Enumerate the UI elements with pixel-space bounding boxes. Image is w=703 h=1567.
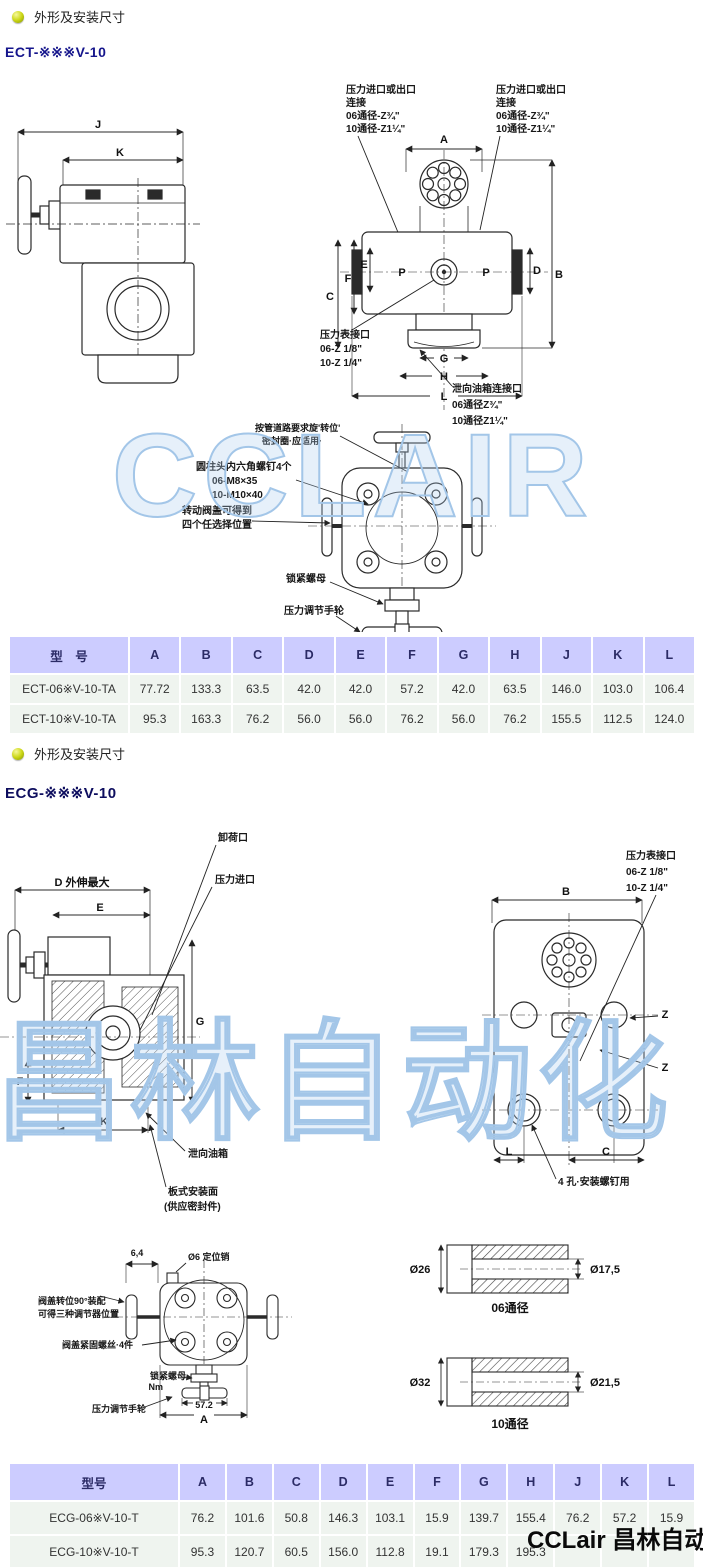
svg-text:压力调节手轮: 压力调节手轮	[284, 604, 344, 617]
table-cell: ECT-10※V-10-TA	[10, 705, 128, 733]
table-cell: 42.0	[439, 675, 488, 703]
table-row: ECT-10※V-10-TA 95.3 163.3 76.2 56.0 56.0…	[10, 705, 694, 733]
ect-bottom-view	[308, 424, 496, 632]
ect-handwheel-annotation: 压力调节手轮	[284, 604, 360, 632]
cclair-logo: CCLair 昌林自动化	[527, 1520, 703, 1555]
table-header-e: E	[368, 1464, 413, 1500]
dim-572: 57.2	[195, 1400, 213, 1410]
dim-label-c: C	[602, 1146, 610, 1158]
bullet-icon	[12, 748, 24, 760]
table-cell: 155.5	[542, 705, 591, 733]
bore10-outer: Ø32	[410, 1377, 431, 1389]
svg-text:压力进口或出口: 压力进口或出口	[496, 83, 566, 96]
table-cell: 124.0	[645, 705, 694, 733]
table-header-g: G	[439, 637, 488, 673]
table-cell: 50.8	[274, 1502, 319, 1534]
bore10-inner: Ø21,5	[590, 1377, 620, 1389]
table-cell: 76.2	[490, 705, 539, 733]
table-cell: 19.1	[415, 1536, 460, 1567]
ecg-drain-annotation: 泄向油箱	[146, 1113, 228, 1160]
table-cell: 146.3	[321, 1502, 366, 1534]
table-cell: 106.4	[645, 675, 694, 703]
dim-label-p-left: P	[398, 267, 405, 279]
table-header-row: 型 号 A B C D E F G H J K L	[10, 637, 694, 673]
svg-text:Ø6 定位销: Ø6 定位销	[188, 1251, 230, 1262]
table-cell: 56.0	[336, 705, 385, 733]
dim-label-b: B	[562, 886, 570, 898]
table-header-f: F	[415, 1464, 460, 1500]
svg-text:(供应密封件): (供应密封件)	[164, 1200, 221, 1213]
dim-label-a: A	[200, 1414, 208, 1426]
dim-label-e: E	[96, 902, 103, 914]
table-cell: 133.3	[181, 675, 230, 703]
table-cell: 101.6	[227, 1502, 272, 1534]
svg-text:10通径-Z1¼": 10通径-Z1¼"	[496, 122, 555, 135]
ect-drawing: J K 压力进口或出口 连接 06通径-Z¾" 10通径-Z1¼" 压力进口或出…	[0, 80, 703, 632]
table-cell: 112.5	[593, 705, 642, 733]
svg-text:06通径Z¾": 06通径Z¾"	[452, 398, 503, 411]
svg-text:板式安装面: 板式安装面	[168, 1185, 218, 1198]
ecg-mount-annotation: 板式安装面 (供应密封件)	[150, 1125, 221, 1213]
ecg-detail-drawing: 6,4 Ø6 定位销 阀盖转位90°装配 可得三种调节器位置 阀盖紧固螺丝·4件…	[0, 1240, 703, 1455]
svg-text:密封圈·应适用·: 密封圈·应适用·	[261, 435, 322, 446]
table-cell: 95.3	[180, 1536, 225, 1567]
ecg-side-view	[0, 890, 200, 1133]
table-cell: ECT-06※V-10-TA	[10, 675, 128, 703]
ect-cover-annotation: 转动阀盖可得到 四个任选择位置	[182, 504, 330, 531]
svg-text:压力表接口: 压力表接口	[626, 849, 676, 862]
table-cell: 95.3	[130, 705, 179, 733]
dim-label-dmax: D 外伸最大	[55, 875, 110, 889]
table-cell: ECG-10※V-10-T	[10, 1536, 178, 1567]
svg-text:阀盖紧固螺丝·4件: 阀盖紧固螺丝·4件	[62, 1339, 133, 1350]
bore10-label: 10通径	[491, 1416, 528, 1431]
svg-text:连接: 连接	[346, 96, 366, 109]
dim-label-d: D	[533, 265, 541, 277]
table-cell: 103.1	[368, 1502, 413, 1534]
table-cell: 76.2	[387, 705, 436, 733]
svg-text:06通径-Z¾": 06通径-Z¾"	[346, 109, 400, 122]
table-cell: 42.0	[336, 675, 385, 703]
ecg-pin-annotation: Ø6 定位销	[176, 1251, 230, 1272]
table-cell: 76.2	[233, 705, 282, 733]
svg-text:转动阀盖可得到: 转动阀盖可得到	[182, 504, 252, 517]
dim-label-g: G	[440, 353, 449, 365]
ect-drain-annotation: 泄向油箱连接口 06通径Z¾" 10通径Z1¼"	[420, 350, 522, 427]
svg-text:四个任选择位置: 四个任选择位置	[182, 518, 252, 531]
table-header-c: C	[274, 1464, 319, 1500]
ecg-cover90-annotation: 阀盖转位90°装配 可得三种调节器位置	[38, 1295, 124, 1319]
table-header-model: 型号	[10, 1464, 178, 1500]
model-heading-ecg: ECG-※※※V-10	[5, 784, 117, 802]
svg-text:锁紧螺母: 锁紧螺母	[286, 572, 326, 585]
svg-text:压力进口或出口: 压力进口或出口	[346, 83, 416, 96]
table-header-f: F	[387, 637, 436, 673]
table-header-a: A	[180, 1464, 225, 1500]
ect-port-annotation-left: 压力进口或出口 连接 06通径-Z¾" 10通径-Z1¼"	[346, 83, 416, 242]
dim-label-a: A	[440, 134, 448, 146]
table-header-c: C	[233, 637, 282, 673]
dim-label-l: L	[506, 1146, 513, 1158]
svg-text:10-Z 1/4": 10-Z 1/4"	[320, 358, 362, 369]
ecg-top-view	[115, 1260, 292, 1418]
dim-label-k: K	[100, 1116, 108, 1128]
table-header-e: E	[336, 637, 385, 673]
dim-label-z1: Z	[662, 1009, 669, 1021]
table-header-k: K	[602, 1464, 647, 1500]
svg-text:10-M10×40: 10-M10×40	[212, 490, 263, 501]
table-cell: ECG-06※V-10-T	[10, 1502, 178, 1534]
bore-06-drawing	[441, 1245, 584, 1293]
svg-text:可得三种调节器位置: 可得三种调节器位置	[38, 1308, 119, 1319]
table-cell: 139.7	[461, 1502, 506, 1534]
table-cell: 63.5	[233, 675, 282, 703]
table-header-k: K	[593, 637, 642, 673]
bullet-icon	[12, 11, 24, 23]
dim-label-g: G	[196, 1016, 205, 1028]
table-header-a: A	[130, 637, 179, 673]
ecg-cover-screws-annotation: 阀盖紧固螺丝·4件	[62, 1339, 176, 1350]
bore06-inner: Ø17,5	[590, 1264, 620, 1276]
svg-text:06通径-Z¾": 06通径-Z¾"	[496, 109, 550, 122]
table-header-b: B	[181, 637, 230, 673]
section1-header: 外形及安装尺寸	[12, 7, 125, 26]
svg-text:06-M8×35: 06-M8×35	[212, 476, 258, 487]
svg-text:连接: 连接	[496, 96, 516, 109]
svg-text:06-Z 1/8": 06-Z 1/8"	[626, 867, 668, 878]
table-header-b: B	[227, 1464, 272, 1500]
svg-text:10-Z 1/4": 10-Z 1/4"	[626, 883, 668, 894]
table-header-l: L	[645, 637, 694, 673]
ecg-locknut-annotation: 锁紧螺母	[150, 1370, 192, 1381]
nm-label: Nm	[148, 1382, 163, 1392]
svg-text:圆柱头内六角螺钉4个: 圆柱头内六角螺钉4个	[196, 460, 293, 473]
table-header-model: 型 号	[10, 637, 128, 673]
table-cell: 146.0	[542, 675, 591, 703]
svg-text:压力调节手轮: 压力调节手轮	[92, 1403, 146, 1414]
catalog-page: 外形及安装尺寸 ECT-※※※V-10	[0, 0, 703, 1567]
dim-label-k: K	[116, 147, 124, 159]
dim-label-j: J	[95, 119, 101, 131]
svg-text:10通径-Z1¼": 10通径-Z1¼"	[346, 122, 405, 135]
svg-text:泄向油箱连接口: 泄向油箱连接口	[452, 382, 522, 395]
table-cell: 77.72	[130, 675, 179, 703]
table-header-l: L	[649, 1464, 694, 1500]
bore06-outer: Ø26	[410, 1264, 431, 1276]
svg-text:压力进口: 压力进口	[215, 873, 255, 886]
table-cell: 163.3	[181, 705, 230, 733]
table-cell: 57.2	[387, 675, 436, 703]
section1-title: 外形及安装尺寸	[34, 7, 125, 26]
table-cell: 63.5	[490, 675, 539, 703]
svg-text:06-Z 1/8": 06-Z 1/8"	[320, 344, 362, 355]
table-header-j: J	[555, 1464, 600, 1500]
table-header-h: H	[490, 637, 539, 673]
table-cell: 76.2	[180, 1502, 225, 1534]
svg-text:10通径Z1¼": 10通径Z1¼"	[452, 414, 508, 427]
ecg-face-view	[482, 900, 658, 1167]
svg-text:4 孔·安装螺钉用: 4 孔·安装螺钉用	[558, 1175, 630, 1188]
svg-text:锁紧螺母: 锁紧螺母	[150, 1370, 186, 1381]
table-cell: 120.7	[227, 1536, 272, 1567]
table-cell: 56.0	[439, 705, 488, 733]
table-cell: 60.5	[274, 1536, 319, 1567]
table-cell: 42.0	[284, 675, 333, 703]
dim-label-c: C	[326, 291, 334, 303]
table-cell: 156.0	[321, 1536, 366, 1567]
table-header-d: D	[284, 637, 333, 673]
bore06-label: 06通径	[491, 1300, 528, 1315]
table-cell: 56.0	[284, 705, 333, 733]
dim-label-f: F	[17, 1076, 24, 1088]
dim-label-f: F	[345, 273, 352, 285]
dim-label-z2: Z	[662, 1062, 669, 1074]
table-cell: 15.9	[415, 1502, 460, 1534]
dim-64: 6,4	[131, 1248, 144, 1258]
dim-label-l: L	[441, 391, 448, 403]
table-row: ECT-06※V-10-TA 77.72 133.3 63.5 42.0 42.…	[10, 675, 694, 703]
table-cell: 179.3	[461, 1536, 506, 1567]
table-header-j: J	[542, 637, 591, 673]
table-cell: 103.0	[593, 675, 642, 703]
svg-text:按管道路要求旋'转位': 按管道路要求旋'转位'	[255, 422, 340, 433]
section2-title: 外形及安装尺寸	[34, 744, 125, 763]
model-heading-ect: ECT-※※※V-10	[5, 44, 106, 61]
svg-text:卸荷口: 卸荷口	[218, 831, 248, 844]
bore-10-drawing	[441, 1358, 584, 1406]
table-header-row: 型号 A B C D E F G H J K L	[10, 1464, 694, 1500]
ect-side-view	[6, 132, 200, 383]
dim-label-e: E	[360, 259, 367, 271]
svg-text:阀盖转位90°装配: 阀盖转位90°装配	[38, 1295, 106, 1306]
dim-label-b: B	[555, 269, 563, 281]
svg-text:压力表接口: 压力表接口	[320, 328, 370, 341]
dim-label-p-right: P	[482, 267, 489, 279]
table-cell: 112.8	[368, 1536, 413, 1567]
table-header-d: D	[321, 1464, 366, 1500]
svg-text:泄向油箱: 泄向油箱	[188, 1147, 228, 1160]
ect-port-annotation-right: 压力进口或出口 连接 06通径-Z¾" 10通径-Z1¼"	[480, 83, 566, 230]
ecg-drawing: D 外伸最大 E G F K 卸荷口 压力进口 泄向油箱 板式安装面 (供应密封…	[0, 825, 703, 1250]
table-header-g: G	[461, 1464, 506, 1500]
ect-dimension-table: 型 号 A B C D E F G H J K L ECT-06※V-10-TA…	[8, 635, 696, 735]
table-header-h: H	[508, 1464, 553, 1500]
section2-header: 外形及安装尺寸	[12, 744, 125, 763]
